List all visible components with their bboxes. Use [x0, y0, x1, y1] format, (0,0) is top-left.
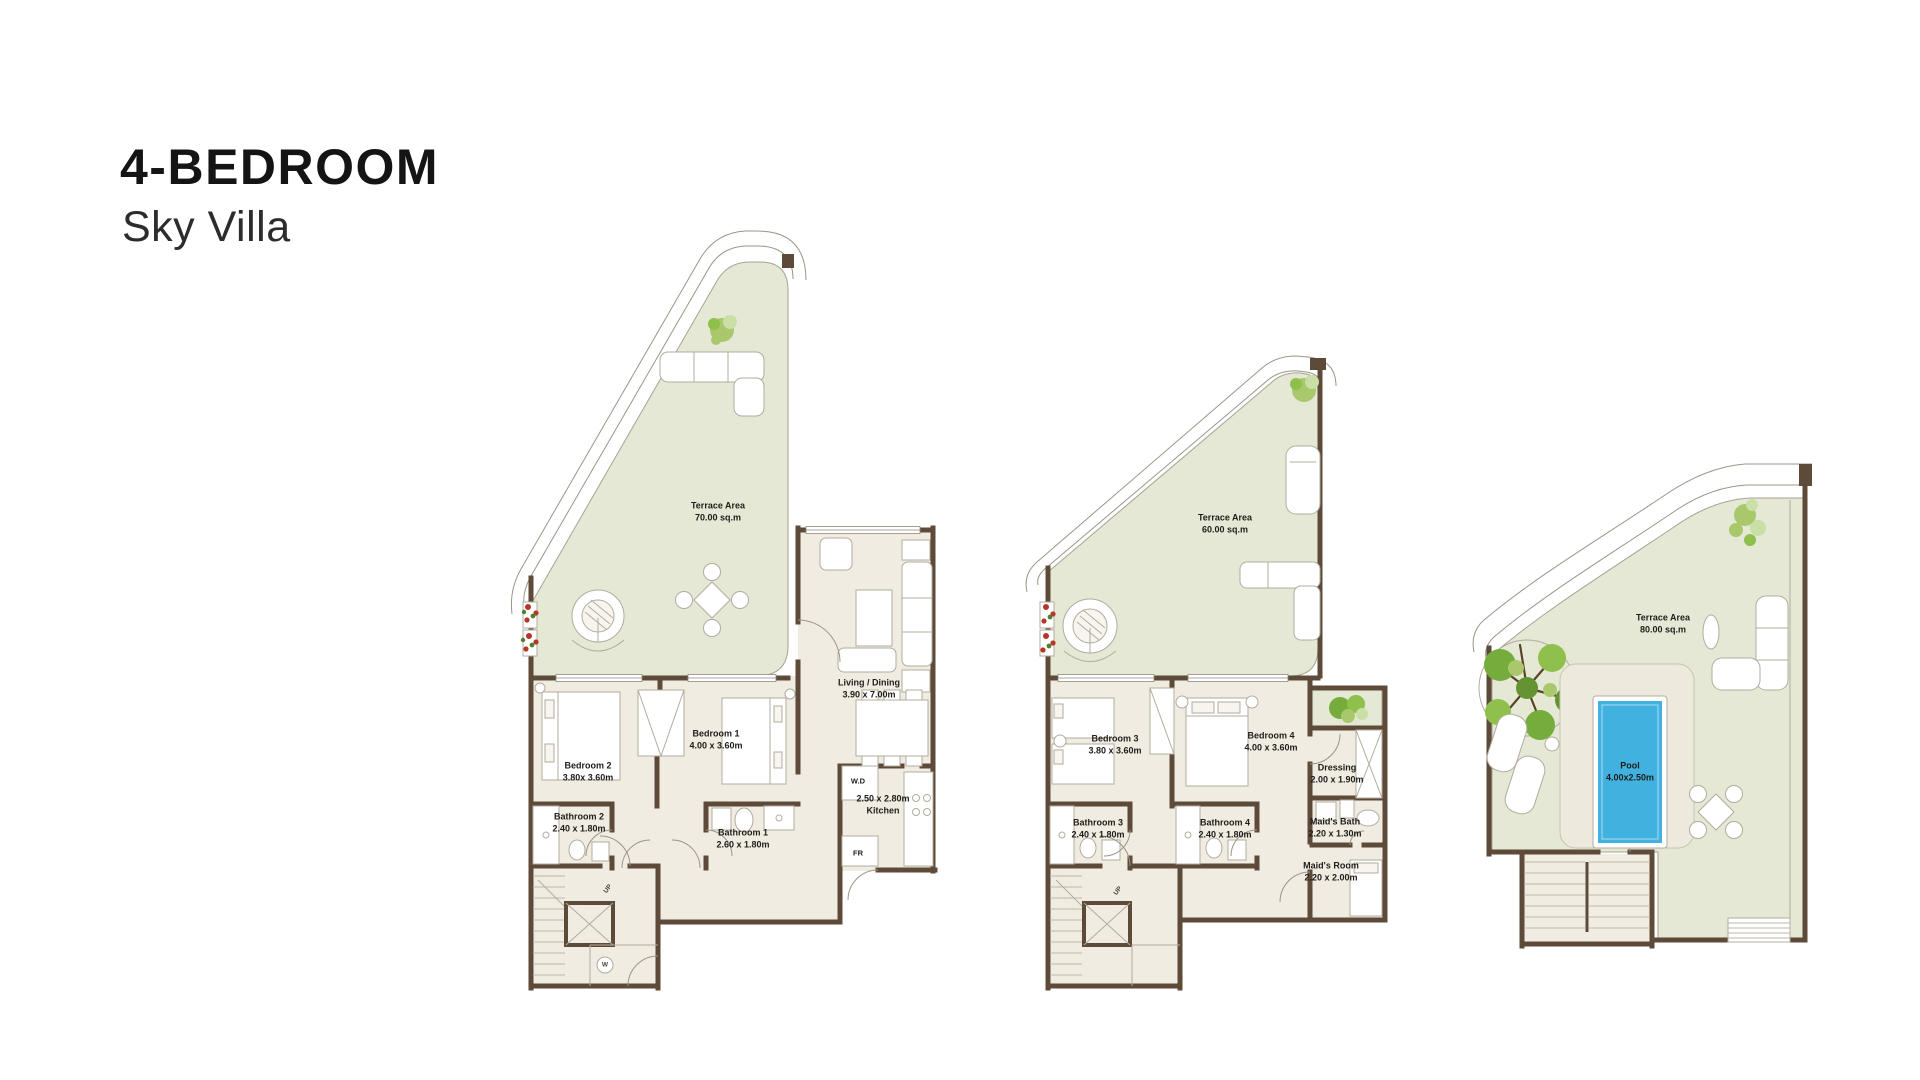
door-mat — [1728, 918, 1790, 942]
wardrobe-level-1 — [638, 690, 684, 756]
page-subtitle: Sky Villa — [122, 203, 291, 252]
room-label-bedroom-3: Bedroom 33.80 x 3.60m — [1088, 733, 1141, 756]
label-washer: W — [602, 962, 608, 969]
room-label-bedroom-1: Bedroom 14.00 x 3.60m — [689, 728, 742, 751]
room-label-terrace-l2: Terrace Area60.00 sq.m — [1198, 512, 1252, 535]
room-label-bedroom-4: Bedroom 44.00 x 3.60m — [1244, 730, 1297, 753]
room-label-bathroom-2: Bathroom 22.40 x 1.80m — [552, 811, 605, 834]
room-label-terrace-roof: Terrace Area80.00 sq.m — [1636, 612, 1690, 635]
room-label-maids-bath: Maid's Bath2.20 x 1.30m — [1308, 816, 1361, 839]
room-label-terrace-l1: Terrace Area70.00 sq.m — [691, 500, 745, 523]
floor-plan-level-2 — [1026, 356, 1385, 988]
label-fr: FR — [853, 849, 863, 858]
room-label-bedroom-2: Bedroom 23.80x 3.60m — [563, 760, 614, 783]
room-label-bathroom-3: Bathroom 32.40 x 1.80m — [1071, 817, 1124, 840]
room-label-pool: Pool4.00x2.50m — [1606, 760, 1654, 783]
dining-table-level-1 — [856, 690, 928, 766]
room-label-living-dining: Living / Dining3.90 x 7.00m — [838, 677, 900, 700]
label-wd: W.D — [851, 777, 865, 786]
floor-plan-roof — [1473, 464, 1812, 946]
terrace-level-1 — [531, 262, 788, 676]
room-label-dressing: Dressing2.00 x 1.90m — [1310, 762, 1363, 785]
room-label-bathroom-1: Bathroom 12.60 x 1.80m — [716, 827, 769, 850]
sun-lounger-level-2 — [1286, 446, 1320, 514]
pouf — [1703, 615, 1719, 649]
room-label-kitchen: 2.50 x 2.80mKitchen — [856, 793, 909, 816]
floor-plan-level-1 — [511, 231, 935, 988]
room-label-bathroom-4: Bathroom 42.40 x 1.80m — [1198, 817, 1251, 840]
floorplan-page: 4-BEDROOM Sky Villa Terrace Area70.00 sq… — [0, 0, 1920, 1080]
page-title: 4-BEDROOM — [120, 138, 439, 196]
roof-dining-set — [1690, 786, 1743, 839]
room-label-maids-room: Maid's Room2.20 x 2.00m — [1303, 860, 1359, 883]
wardrobe-level-2 — [1150, 688, 1174, 754]
pool-area — [1560, 664, 1694, 848]
